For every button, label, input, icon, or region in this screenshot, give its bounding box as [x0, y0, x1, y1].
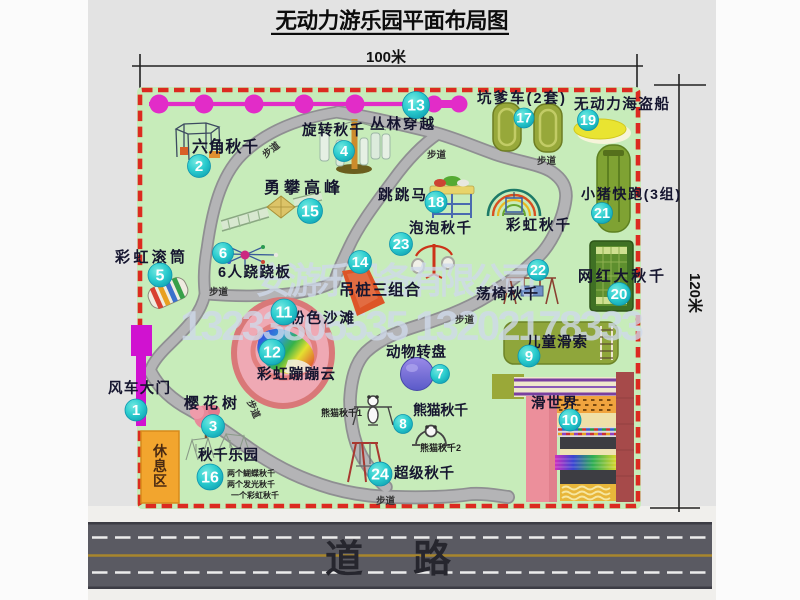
svg-text:15: 15 [301, 204, 319, 221]
svg-text:路: 路 [413, 539, 452, 581]
svg-text:8: 8 [399, 417, 407, 432]
svg-text:7: 7 [436, 367, 444, 382]
svg-text:一个彩虹秋千: 一个彩虹秋千 [231, 490, 279, 500]
svg-text:19: 19 [580, 113, 596, 129]
svg-text:2: 2 [195, 158, 203, 175]
svg-text:5: 5 [156, 268, 165, 285]
svg-text:步道: 步道 [455, 314, 475, 326]
svg-text:秋千乐园: 秋千乐园 [198, 446, 258, 464]
svg-text:旋转秋千: 旋转秋千 [301, 121, 365, 139]
svg-text:步道: 步道 [427, 149, 447, 161]
svg-text:丛林穿越: 丛林穿越 [370, 115, 435, 133]
svg-text:6人跷跷板: 6人跷跷板 [218, 263, 291, 281]
svg-text:17: 17 [516, 110, 532, 126]
svg-text:3: 3 [209, 418, 217, 435]
svg-text:跳跳马: 跳跳马 [378, 186, 426, 204]
svg-text:无动力游乐园平面布局图: 无动力游乐园平面布局图 [276, 8, 509, 33]
svg-text:两个发光秋千: 两个发光秋千 [227, 479, 275, 489]
svg-text:泡泡秋千: 泡泡秋千 [409, 219, 472, 237]
svg-text:16: 16 [201, 470, 219, 487]
svg-text:9: 9 [525, 348, 533, 365]
svg-text:超级秋千: 超级秋千 [393, 464, 455, 482]
svg-text:熊猫秋千1: 熊猫秋千1 [321, 407, 362, 418]
svg-text:20: 20 [611, 286, 628, 303]
svg-text:区: 区 [153, 473, 167, 489]
svg-text:荡椅秋千: 荡椅秋千 [476, 285, 539, 303]
svg-text:13: 13 [407, 98, 425, 115]
svg-text:4: 4 [340, 144, 348, 160]
svg-text:动物转盘: 动物转盘 [386, 343, 447, 361]
svg-text:道: 道 [325, 539, 363, 581]
svg-text:24: 24 [371, 467, 389, 484]
svg-text:六角秋千: 六角秋千 [192, 137, 258, 156]
svg-text:熊猫秋千2: 熊猫秋千2 [420, 442, 461, 453]
svg-text:10: 10 [562, 412, 579, 429]
svg-text:粉色沙滩: 粉色沙滩 [290, 309, 355, 327]
svg-text:彩虹蹦蹦云: 彩虹蹦蹦云 [256, 365, 335, 383]
svg-text:息: 息 [153, 458, 167, 474]
svg-text:风车大门: 风车大门 [108, 379, 170, 397]
svg-text:12: 12 [263, 345, 281, 362]
svg-text:21: 21 [594, 206, 610, 222]
svg-text:步道: 步道 [209, 286, 229, 298]
svg-text:14: 14 [352, 254, 369, 271]
svg-text:步道: 步道 [537, 155, 557, 167]
svg-text:18: 18 [428, 194, 445, 211]
svg-text:小猪快跑(3组): 小猪快跑(3组) [581, 186, 680, 202]
svg-text:步道: 步道 [376, 495, 396, 507]
svg-text:坑爹车(2套): 坑爹车(2套) [477, 89, 565, 107]
svg-text:熊猫秋千: 熊猫秋千 [413, 402, 468, 418]
svg-text:11: 11 [276, 305, 293, 322]
svg-text:两个蝴蝶秋千: 两个蝴蝶秋千 [227, 468, 275, 478]
svg-text:樱花树: 樱花树 [184, 394, 237, 412]
svg-text:吊桩三组合: 吊桩三组合 [339, 280, 420, 299]
svg-text:6: 6 [219, 245, 227, 262]
svg-text:23: 23 [393, 236, 410, 253]
svg-text:1: 1 [132, 402, 140, 419]
svg-text:休: 休 [152, 443, 168, 459]
svg-text:22: 22 [530, 263, 546, 279]
svg-text:120米: 120米 [686, 273, 704, 314]
svg-text:100米: 100米 [366, 48, 407, 66]
